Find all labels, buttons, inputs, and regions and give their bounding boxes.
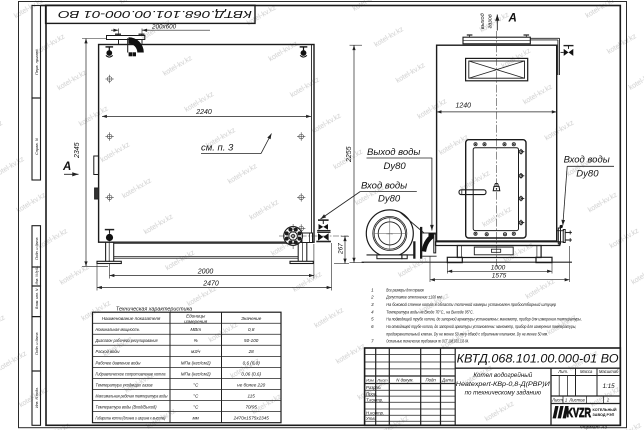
svg-text:Утв.: Утв. <box>366 416 376 421</box>
svg-text:Наименование показателя: Наименование показателя <box>102 316 161 321</box>
svg-text:Пров.: Пров. <box>366 391 377 396</box>
svg-text:Температура уходящих газов: Температура уходящих газов <box>96 382 154 387</box>
svg-text:28: 28 <box>248 349 255 354</box>
svg-text:Диапазон рабочего регулировани: Диапазон рабочего регулирования <box>95 338 158 343</box>
svg-text:115: 115 <box>248 393 256 398</box>
svg-text:КВТД.068.101.00.000-01 ВО: КВТД.068.101.00.000-01 ВО <box>457 351 619 365</box>
svg-text:0,06 (0,6): 0,06 (0,6) <box>241 371 261 376</box>
svg-text:200х600: 200х600 <box>151 24 177 31</box>
svg-text:КВТД.068.101.00.000-01 ВО: КВТД.068.101.00.000-01 ВО <box>58 8 252 19</box>
svg-text:А: А <box>62 161 71 173</box>
svg-text:Дата: Дата <box>441 378 454 383</box>
svg-text:Изм: Изм <box>366 378 374 383</box>
svg-text:°С: °С <box>193 382 199 387</box>
svg-text:Максимальная рабочая температу: Максимальная рабочая температура воды <box>96 393 168 398</box>
svg-text:м3/ч: м3/ч <box>191 349 201 354</box>
svg-text:не более 220: не более 220 <box>237 382 265 387</box>
svg-text:выход: выход <box>480 13 486 29</box>
svg-text:Температура воды на Входе 70°: Температура воды на Входе 70°С., на Выхо… <box>386 309 473 314</box>
svg-text:Dy80: Dy80 <box>378 193 401 204</box>
svg-text:КОТЕЛЬНЫЙ: КОТЕЛЬНЫЙ <box>593 408 617 412</box>
svg-text:см. п. 3: см. п. 3 <box>201 143 234 154</box>
svg-text:KVZR: KVZR <box>567 406 592 420</box>
svg-text:Формат А3: Формат А3 <box>580 424 607 430</box>
svg-text:Лист: Лист <box>551 398 563 403</box>
svg-text:2240: 2240 <box>195 109 212 116</box>
svg-text:Выход воды: Выход воды <box>367 147 420 158</box>
svg-text:предохранительный клапан. Dу н: предохранительный клапан. Dу не менее 50… <box>386 330 548 336</box>
svg-text:Перв. примен.: Перв. примен. <box>34 48 39 75</box>
svg-text:На боковой стенке котла в обла: На боковой стенке котла в области топочн… <box>386 301 556 307</box>
svg-text:Гидравлическое сопротивление к: Гидравлическое сопротивление котла <box>96 371 166 376</box>
svg-text:Допустимое отклонение ±100 мм: Допустимое отклонение ±100 мм. <box>386 295 443 300</box>
svg-text:1: 1 <box>565 398 567 403</box>
svg-text:Т.контр.: Т.контр. <box>366 398 383 403</box>
svg-text:1240: 1240 <box>456 103 472 110</box>
svg-text:Рабочее давление воды: Рабочее давление воды <box>96 360 142 365</box>
svg-text:Вход воды: Вход воды <box>564 155 610 166</box>
svg-text:Масса: Масса <box>580 369 593 374</box>
svg-text:2000: 2000 <box>197 268 214 275</box>
svg-text:Вход воды: Вход воды <box>361 181 407 192</box>
svg-text:Инв. N дубл.: Инв. N дубл. <box>35 265 39 284</box>
svg-text:1:15: 1:15 <box>603 383 616 390</box>
svg-text:мм: мм <box>193 416 200 421</box>
svg-text:1000: 1000 <box>491 264 506 271</box>
svg-text:70/95: 70/95 <box>245 405 257 410</box>
svg-text:2345: 2345 <box>74 142 81 159</box>
svg-text:Все размеры для справок: Все размеры для справок <box>386 287 424 292</box>
svg-text:0,8: 0,8 <box>248 327 255 332</box>
svg-text:Лист: Лист <box>376 378 388 383</box>
svg-text:На подводящей трубе котла, до: На подводящей трубе котла, до запорной а… <box>386 316 582 322</box>
svg-text:Листов: Листов <box>568 398 585 403</box>
svg-text:Справ. N: Справ. N <box>34 138 39 155</box>
svg-text:ЗАВОД РЭП: ЗАВОД РЭП <box>593 413 615 417</box>
svg-text:Значение: Значение <box>241 316 262 321</box>
svg-text:Н.контр.: Н.контр. <box>366 410 384 415</box>
svg-text:Разраб.: Разраб. <box>366 385 382 390</box>
svg-text:Расход воды: Расход воды <box>96 349 121 354</box>
svg-text:Остальные технические требован: Остальные технические требования по ОСТ … <box>386 339 469 344</box>
svg-text:Dy80: Dy80 <box>384 161 407 172</box>
svg-text:На отводящей трубе котла, до з: На отводящей трубе котла, до запорной ар… <box>386 323 576 329</box>
svg-text:измерения: измерения <box>184 319 208 324</box>
svg-text:0,6 (6,0): 0,6 (6,0) <box>243 360 261 365</box>
svg-text:МВт: МВт <box>190 327 201 332</box>
svg-text:2470: 2470 <box>202 280 219 287</box>
svg-text:Температура воды (Вход/Выход): Температура воды (Вход/Выход) <box>96 405 157 410</box>
svg-text:Подп. и дата: Подп. и дата <box>35 238 39 261</box>
svg-text:Подп: Подп <box>425 378 436 383</box>
svg-text:газов: газов <box>487 14 493 28</box>
svg-text:Номинальная мощность: Номинальная мощность <box>96 327 140 332</box>
svg-text:МПа (кгс/см2): МПа (кгс/см2) <box>181 371 211 376</box>
svg-text:Подп. и дата: Подп. и дата <box>35 333 39 356</box>
svg-text:50-100: 50-100 <box>244 338 259 343</box>
svg-text:N докум.: N докум. <box>396 378 413 383</box>
svg-text:Heatexpert-КВр-0,8-Д(РВР)И: Heatexpert-КВр-0,8-Д(РВР)И <box>456 381 551 388</box>
svg-text:Техническая характеристика: Техническая характеристика <box>116 306 192 312</box>
svg-text:Инв. N подл.: Инв. N подл. <box>35 387 39 408</box>
svg-text:1575: 1575 <box>492 273 507 280</box>
svg-text:2255: 2255 <box>346 146 353 163</box>
svg-text:Котел водогрейный: Котел водогрейный <box>473 372 532 379</box>
svg-text:по техническому заданию: по техническому заданию <box>465 390 542 397</box>
svg-text:2: 2 <box>370 295 374 300</box>
svg-text:%: % <box>194 338 198 343</box>
svg-text:Лит.: Лит. <box>557 369 568 374</box>
svg-text:Взам. инв. N: Взам. инв. N <box>35 288 39 309</box>
svg-text:МПа (кгс/см2): МПа (кгс/см2) <box>181 360 211 365</box>
svg-text:А: А <box>508 13 517 25</box>
svg-text:Масштаб: Масштаб <box>599 369 619 374</box>
svg-text:°С: °С <box>193 393 199 398</box>
svg-text:Габариты котла (длинна и ширин: Габариты котла (длинна и ширина к высота… <box>96 416 166 421</box>
svg-text:2470х1575х2345: 2470х1575х2345 <box>233 416 270 421</box>
svg-text:267: 267 <box>338 243 345 255</box>
svg-text:Dy80: Dy80 <box>576 169 599 180</box>
svg-text:°С: °С <box>193 405 199 410</box>
